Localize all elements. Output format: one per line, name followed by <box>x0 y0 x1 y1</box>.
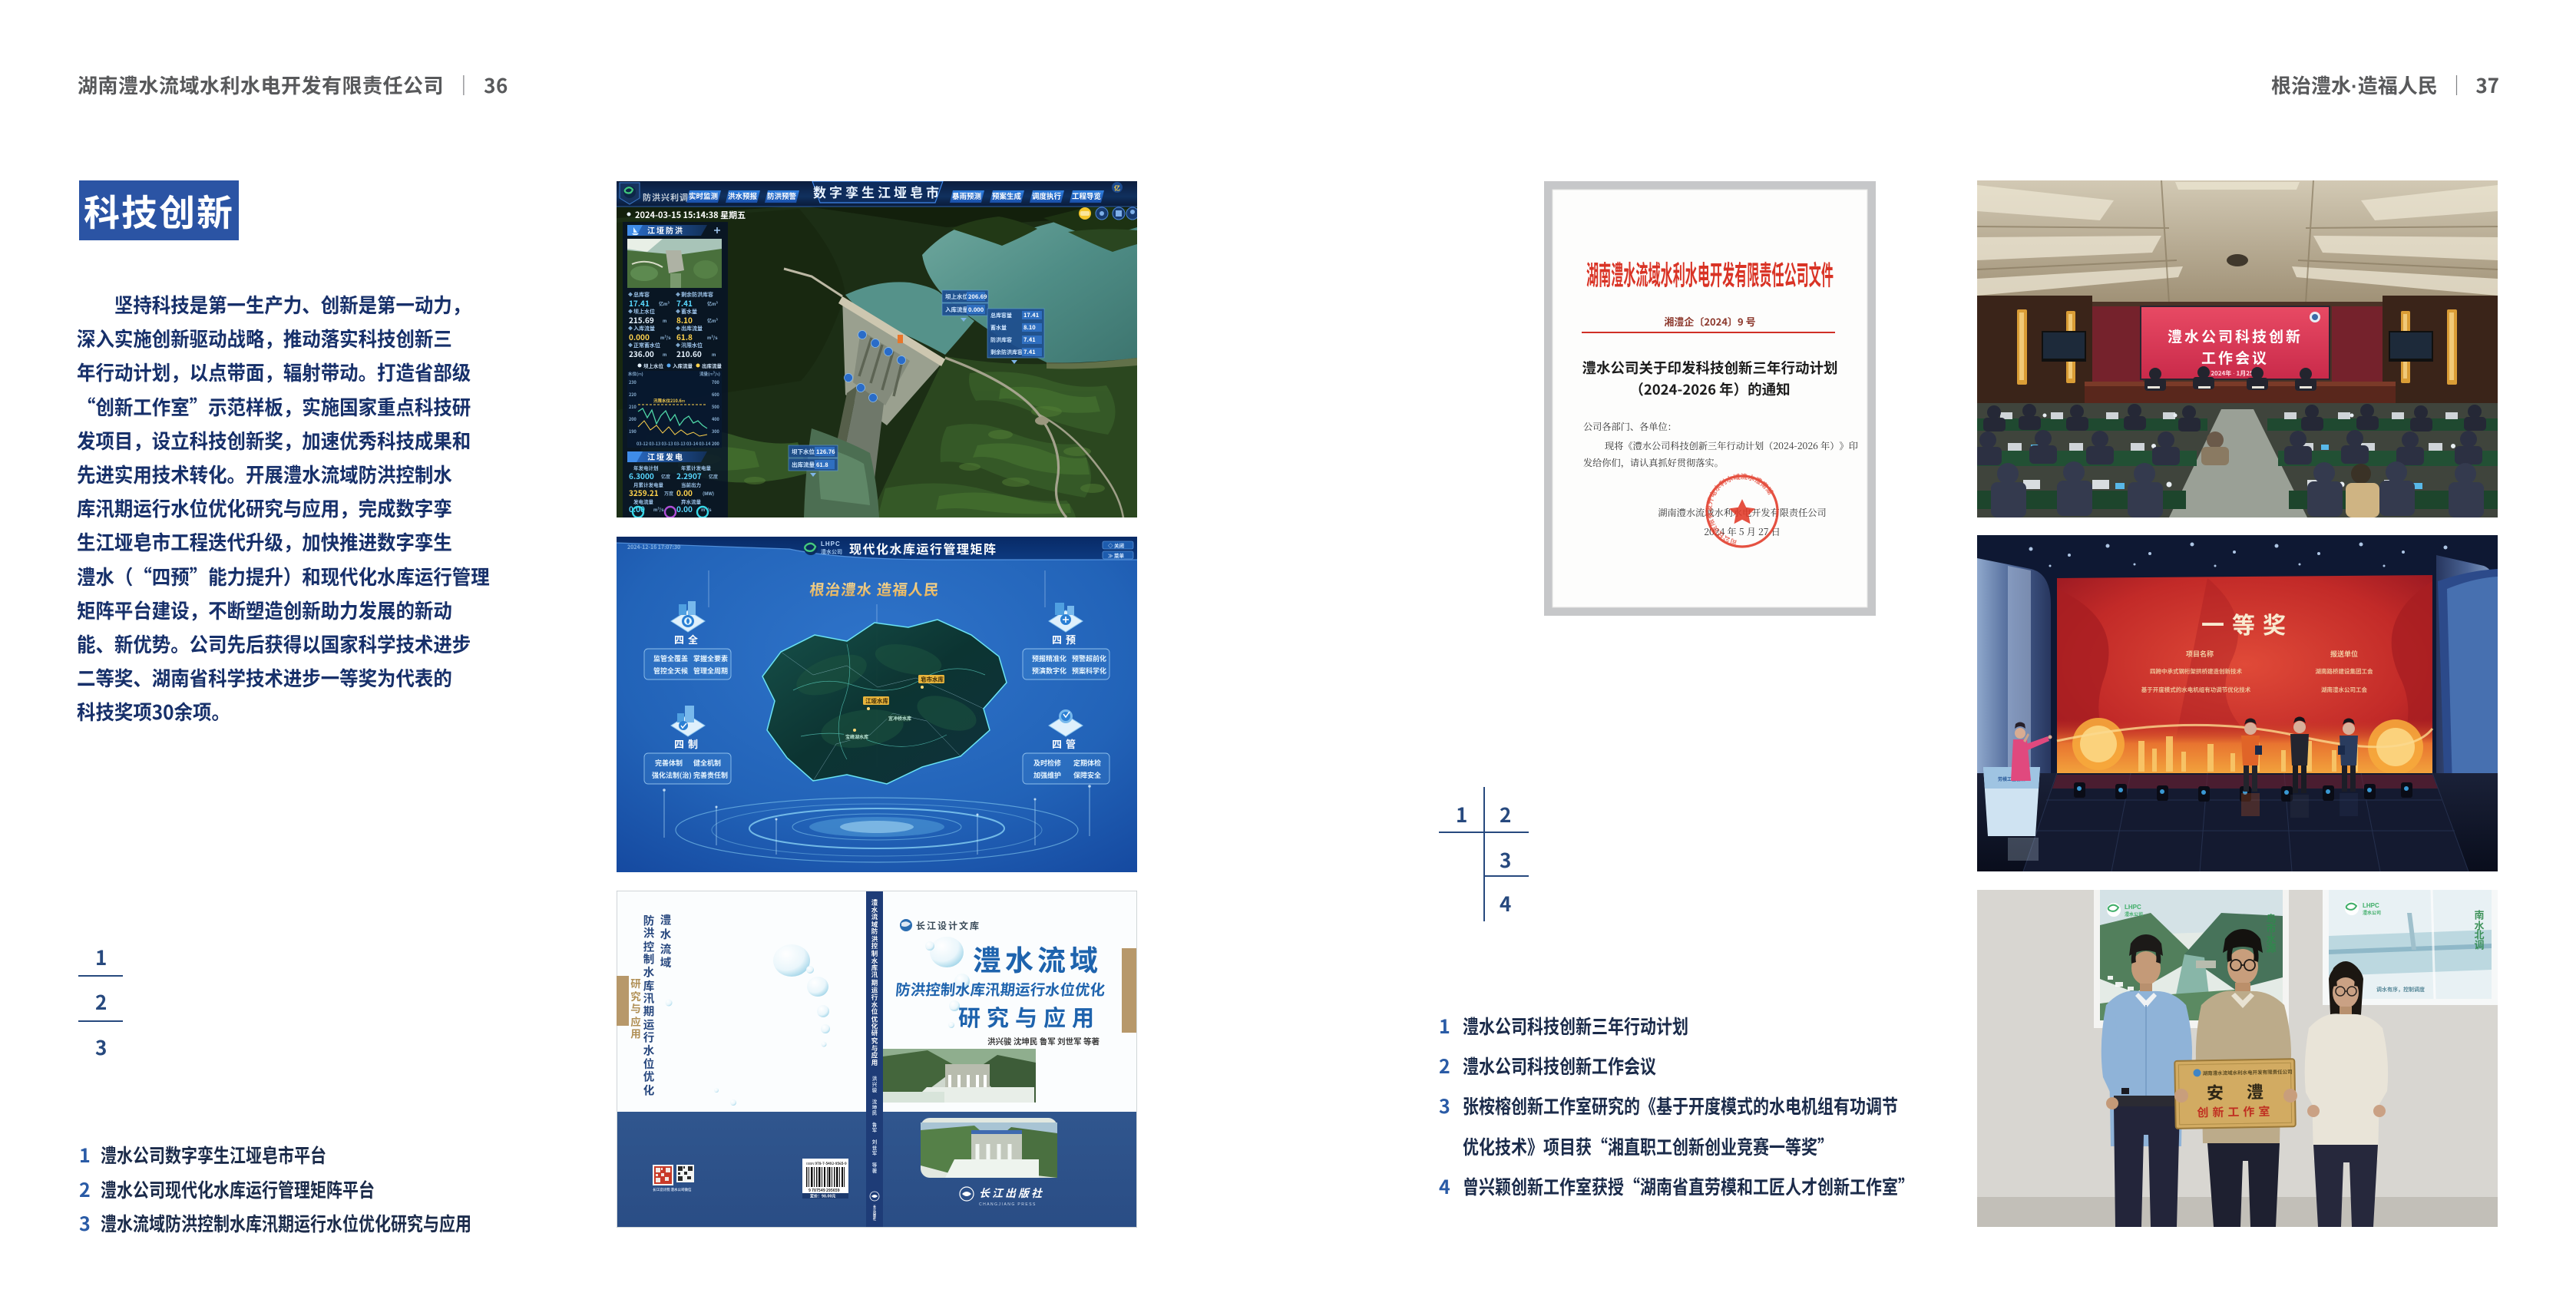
svg-text:0.00: 0.00 <box>676 487 693 498</box>
svg-text:澧水公司: 澧水公司 <box>821 548 842 556</box>
svg-text:江垭水库: 江垭水库 <box>865 697 888 706</box>
svg-text:四制: 四制 <box>674 736 702 751</box>
svg-text:报送单位: 报送单位 <box>2330 649 2358 659</box>
svg-text:2024-12-16 17:07:30: 2024-12-16 17:07:30 <box>627 544 680 551</box>
svg-text:江垭发电: 江垭发电 <box>647 451 684 462</box>
svg-text:公司各部门、各单位：: 公司各部门、各单位： <box>1583 420 1677 433</box>
svg-text:南水北调: 南水北调 <box>2472 910 2487 951</box>
svg-text:四管: 四管 <box>1052 736 1080 751</box>
svg-text:澧水流域: 澧水流域 <box>658 914 674 970</box>
svg-text:加强维护: 加强维护 <box>1033 770 1061 780</box>
svg-text:亿度: 亿度 <box>709 473 718 480</box>
svg-text:215.69: 215.69 <box>629 314 654 326</box>
svg-text:澧水流域: 澧水流域 <box>973 937 1102 979</box>
svg-text:及时检修: 及时检修 <box>1033 758 1061 768</box>
svg-text:保障安全: 保障安全 <box>1073 770 1101 780</box>
svg-text:项目名称: 项目名称 <box>2186 649 2214 659</box>
svg-text:洪兴骏 沈坤民 鲁军 刘世军 等著: 洪兴骏 沈坤民 鲁军 刘世军 等著 <box>987 1036 1100 1047</box>
svg-text:3259.21: 3259.21 <box>629 487 659 498</box>
svg-text:220: 220 <box>629 392 637 398</box>
svg-text:工程导览: 工程导览 <box>1072 190 1102 201</box>
svg-text:工作会议: 工作会议 <box>2201 347 2269 368</box>
svg-text:206.69: 206.69 <box>968 293 987 301</box>
svg-text:宜冲桥水库: 宜冲桥水库 <box>888 715 911 722</box>
svg-text:澧水公司: 澧水公司 <box>2125 911 2143 918</box>
svg-text:创新工作室: 创新工作室 <box>2197 1103 2273 1121</box>
svg-text:600: 600 <box>712 392 719 398</box>
svg-text:鸟市水源: 鸟市水源 <box>2264 913 2279 954</box>
svg-text:调水有序，控制调度: 调水有序，控制调度 <box>2376 986 2425 994</box>
svg-text:17.41: 17.41 <box>629 297 650 309</box>
svg-text:0.000: 0.000 <box>968 306 984 314</box>
svg-text:健全机制: 健全机制 <box>693 758 721 768</box>
svg-text:定价：98.00元: 定价：98.00元 <box>810 1194 835 1199</box>
svg-text:皂市水库: 皂市水库 <box>921 676 944 684</box>
svg-text:强化法制(治): 强化法制(治) <box>652 770 692 780</box>
svg-text:坝下水位: 坝下水位 <box>792 448 815 456</box>
svg-text:洪兴骏 沈坤民 鲁军 刘世军 等著: 洪兴骏 沈坤民 鲁军 刘世军 等著 <box>871 1075 878 1174</box>
svg-text:掌握全要素: 掌握全要素 <box>693 653 728 663</box>
svg-text:现代化水库运行管理矩阵: 现代化水库运行管理矩阵 <box>849 539 997 557</box>
svg-text:江垭防洪: 江垭防洪 <box>647 224 684 236</box>
svg-text:澧水公司: 澧水公司 <box>2363 909 2381 916</box>
svg-text:(MW): (MW) <box>703 490 714 497</box>
svg-text:现将《澧水公司科技创新三年行动计划（2024-2026 年）: 现将《澧水公司科技创新三年行动计划（2024-2026 年）》印 <box>1605 439 1858 452</box>
svg-text:四跨中承式钢桁架拱桥建造创新技术: 四跨中承式钢桁架拱桥建造创新技术 <box>2150 667 2242 676</box>
svg-text:亿: 亿 <box>1114 184 1120 193</box>
svg-text:安澧: 安澧 <box>2207 1078 2287 1104</box>
svg-text:蓄水量: 蓄水量 <box>990 324 1007 332</box>
svg-text:≫ 菜单: ≫ 菜单 <box>1108 551 1124 559</box>
svg-text:万度: 万度 <box>664 490 673 497</box>
svg-text:7.41: 7.41 <box>1023 336 1036 344</box>
svg-text:CHANGJIANG PRESS: CHANGJIANG PRESS <box>979 1202 1037 1207</box>
svg-text:调度执行: 调度执行 <box>1032 190 1062 201</box>
svg-text:236.00: 236.00 <box>629 348 654 359</box>
svg-text:剩余防洪库容: 剩余防洪库容 <box>990 349 1023 356</box>
svg-text:17.41: 17.41 <box>1023 311 1039 319</box>
svg-text:2.2907: 2.2907 <box>676 470 702 481</box>
svg-text:6.3000: 6.3000 <box>629 470 654 481</box>
svg-text:长江设计院 澧水公司微信: 长江设计院 澧水公司微信 <box>653 1187 692 1192</box>
svg-text:汛限水位210.6m: 汛限水位210.6m <box>653 398 686 404</box>
svg-text:8.10: 8.10 <box>1023 323 1036 332</box>
svg-text:防洪库容: 防洪库容 <box>990 336 1012 344</box>
svg-text:根治澧水 造福人民: 根治澧水 造福人民 <box>809 577 941 600</box>
svg-text:实时监测: 实时监测 <box>689 190 718 201</box>
svg-text:定期体检: 定期体检 <box>1073 758 1101 768</box>
svg-text:m³/s: m³/s <box>653 506 664 513</box>
svg-text:210: 210 <box>629 404 637 410</box>
svg-text:126.76: 126.76 <box>816 448 835 456</box>
svg-text:ISBN 978-7-5492-9565-9: ISBN 978-7-5492-9565-9 <box>806 1162 847 1166</box>
svg-text:8.10: 8.10 <box>676 314 693 326</box>
svg-text:完善责任制: 完善责任制 <box>693 770 728 780</box>
svg-text:03-12 03-13 03-13 03-13 03-14: 03-12 03-13 03-13 03-13 03-14 03-14 <box>637 441 711 447</box>
svg-text:坝上水位: 坝上水位 <box>945 293 968 301</box>
svg-text:防洪预警: 防洪预警 <box>767 190 797 201</box>
svg-text:发给你们，请认真抓好贯彻落实。: 发给你们，请认真抓好贯彻落实。 <box>1583 456 1724 469</box>
svg-text:基于开度模式的水电机组有功调节优化技术: 基于开度模式的水电机组有功调节优化技术 <box>2141 686 2251 694</box>
svg-text:防洪控制水库汛期运行水位优化: 防洪控制水库汛期运行水位优化 <box>894 977 1106 1000</box>
svg-text:预案科学化: 预案科学化 <box>1072 666 1106 676</box>
svg-text:m: m <box>712 351 716 358</box>
svg-text:400: 400 <box>712 416 719 422</box>
svg-text:200: 200 <box>629 416 637 422</box>
svg-text:长江设计文库: 长江设计文库 <box>916 919 980 932</box>
svg-text:数字孪生江垭皂市: 数字孪生江垭皂市 <box>813 182 942 201</box>
svg-text:暴雨预测: 暴雨预测 <box>952 190 981 201</box>
svg-text:一等奖: 一等奖 <box>2201 607 2293 640</box>
svg-text:2024-03-15 15:14:38 星期五: 2024-03-15 15:14:38 星期五 <box>635 209 746 221</box>
svg-text:LHPC: LHPC <box>821 540 841 548</box>
svg-text:亿m³: 亿m³ <box>707 317 718 324</box>
svg-text:长江出版社: 长江出版社 <box>979 1185 1044 1201</box>
svg-text:200: 200 <box>712 441 719 447</box>
svg-text:研究与应用: 研究与应用 <box>958 1000 1100 1033</box>
svg-text:湖南澧水流域水利水电开发有限责任公司文件: 湖南澧水流域水利水电开发有限责任公司文件 <box>1586 253 1834 293</box>
svg-text:61.8: 61.8 <box>816 461 828 469</box>
svg-text:澧水流域防洪控制水库汛期运行水位优化研究与应用: 澧水流域防洪控制水库汛期运行水位优化研究与应用 <box>870 898 879 1066</box>
svg-text:湖南路桥建设集团工会: 湖南路桥建设集团工会 <box>2316 667 2373 676</box>
svg-text:澧水公司关于印发科技创新三年行动计划: 澧水公司关于印发科技创新三年行动计划 <box>1582 358 1837 378</box>
svg-text:坝上水位: 坝上水位 <box>643 362 664 369</box>
svg-text:500: 500 <box>712 404 719 410</box>
svg-text:7.41: 7.41 <box>1023 348 1036 356</box>
svg-text:190: 190 <box>629 428 637 435</box>
svg-text:流量(m³/s): 流量(m³/s) <box>699 371 720 377</box>
svg-text:管理全周期: 管理全周期 <box>693 666 728 676</box>
svg-text:◇ 关闭: ◇ 关闭 <box>1108 541 1124 549</box>
svg-text:亿m³: 亿m³ <box>659 300 670 307</box>
svg-text:210.60: 210.60 <box>676 348 702 359</box>
svg-text:0.000: 0.000 <box>629 331 650 342</box>
svg-text:m³/s: m³/s <box>660 334 671 341</box>
svg-text:入库流量: 入库流量 <box>945 306 968 314</box>
svg-text:230: 230 <box>629 379 637 385</box>
svg-text:7.41: 7.41 <box>676 297 693 309</box>
svg-text:入库流量: 入库流量 <box>673 362 693 369</box>
svg-text:长江出版社: 长江出版社 <box>872 1204 877 1221</box>
svg-text:湘澧企〔2024〕9 号: 湘澧企〔2024〕9 号 <box>1664 314 1755 329</box>
svg-text:0.00: 0.00 <box>676 503 693 514</box>
svg-text:预报精准化: 预报精准化 <box>1032 653 1066 663</box>
svg-text:总库容量: 总库容量 <box>990 312 1012 319</box>
svg-text:300: 300 <box>712 428 719 435</box>
svg-text:管控全天候: 管控全天候 <box>653 666 688 676</box>
svg-text:预演数字化: 预演数字化 <box>1032 666 1066 676</box>
svg-text:湖南澧水公司工会: 湖南澧水公司工会 <box>2321 686 2367 694</box>
svg-text:宝峰湖水库: 宝峰湖水库 <box>845 733 868 740</box>
svg-text:亿度: 亿度 <box>661 473 670 480</box>
svg-text:m: m <box>663 351 666 358</box>
svg-text:预警超前化: 预警超前化 <box>1072 653 1106 663</box>
svg-text:出库流量: 出库流量 <box>792 461 815 469</box>
svg-text:m³/s: m³/s <box>707 334 718 341</box>
svg-text:湖南澧水流域水利水电开发有限责任公司: 湖南澧水流域水利水电开发有限责任公司 <box>2202 1067 2292 1076</box>
svg-text:（2024-2026 年）的通知: （2024-2026 年）的通知 <box>1629 379 1790 399</box>
svg-text:四全: 四全 <box>674 632 702 646</box>
svg-text:研究与应用: 研究与应用 <box>628 977 643 1041</box>
svg-text:完善体制: 完善体制 <box>655 758 683 768</box>
svg-text:61.8: 61.8 <box>676 331 693 342</box>
svg-text:水位(m): 水位(m) <box>628 371 643 377</box>
svg-text:出库流量: 出库流量 <box>702 362 723 369</box>
svg-text:预案生成: 预案生成 <box>992 190 1022 201</box>
svg-text:澧水公司科技创新: 澧水公司科技创新 <box>2168 326 2303 346</box>
svg-text:洪水预报: 洪水预报 <box>728 190 758 201</box>
svg-text:亿m³: 亿m³ <box>707 300 718 307</box>
svg-text:m: m <box>663 317 666 324</box>
svg-text:9 787549 295659: 9 787549 295659 <box>809 1188 840 1193</box>
svg-text:700: 700 <box>712 379 719 385</box>
svg-text:监管全覆盖: 监管全覆盖 <box>653 653 688 663</box>
svg-text:四预: 四预 <box>1052 632 1080 646</box>
